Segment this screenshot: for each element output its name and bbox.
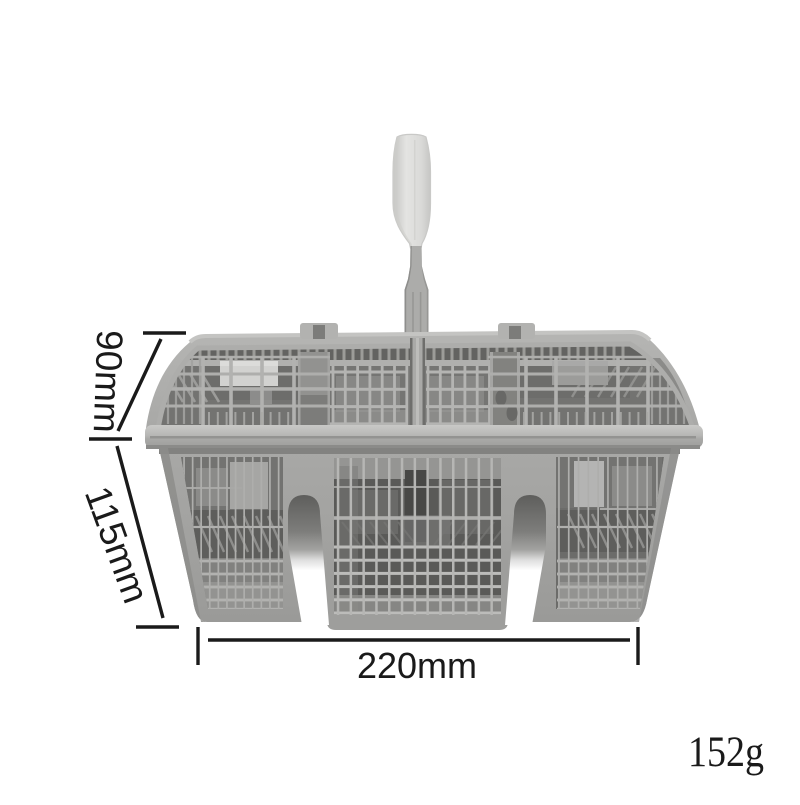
svg-text:90mm: 90mm [86, 329, 131, 433]
svg-text:220mm: 220mm [357, 645, 477, 686]
svg-text:152g: 152g [688, 729, 764, 776]
